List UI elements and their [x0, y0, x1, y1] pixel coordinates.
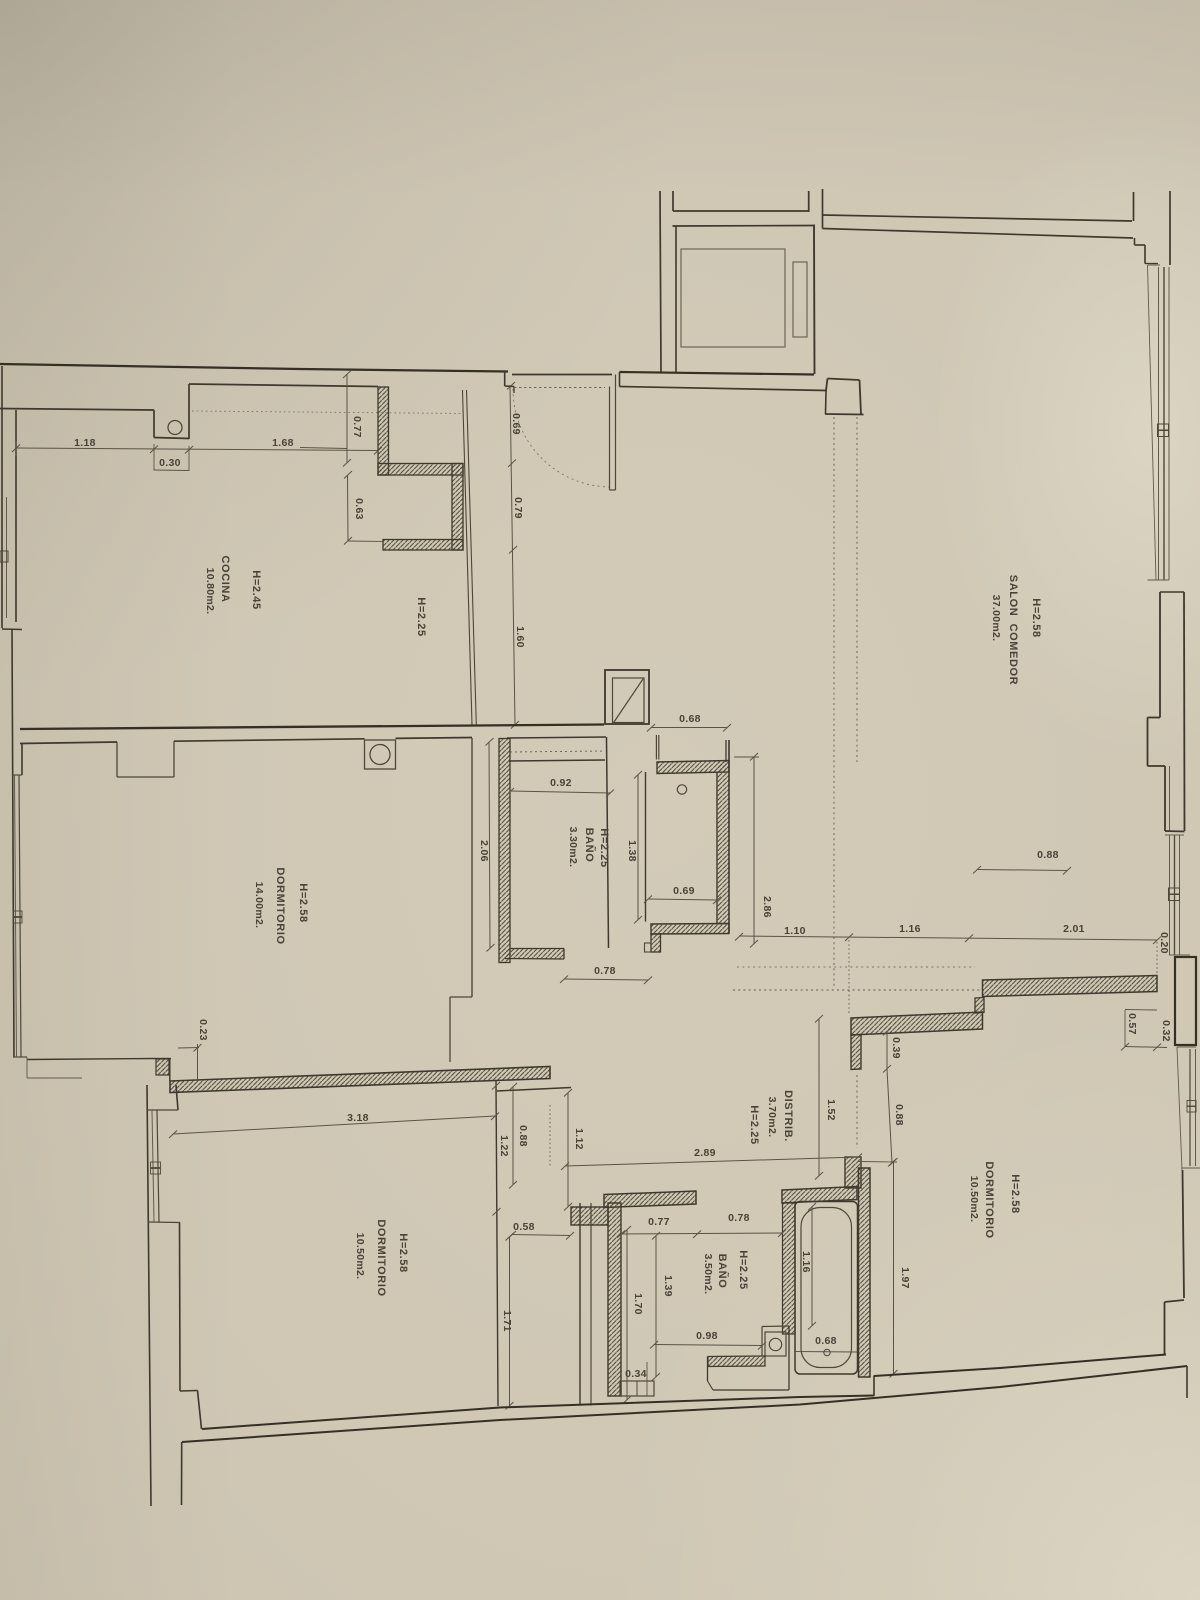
svg-text:0.63: 0.63	[353, 498, 365, 520]
svg-text:BAÑO: BAÑO	[583, 828, 596, 863]
svg-text:0.32: 0.32	[1160, 1020, 1172, 1042]
svg-text:0.34: 0.34	[625, 1368, 647, 1380]
svg-text:0.57: 0.57	[1126, 1013, 1138, 1035]
svg-text:DORMITORIO: DORMITORIO	[274, 867, 286, 944]
svg-text:1.22: 1.22	[498, 1135, 510, 1157]
svg-text:BAÑO: BAÑO	[716, 1254, 729, 1289]
svg-text:2.01: 2.01	[1063, 923, 1085, 935]
svg-text:0.77: 0.77	[648, 1216, 670, 1228]
svg-text:10.50m2.: 10.50m2.	[968, 1176, 980, 1223]
svg-text:1.68: 1.68	[272, 437, 294, 449]
svg-text:0.98: 0.98	[696, 1330, 718, 1342]
svg-text:1.71: 1.71	[501, 1310, 513, 1332]
svg-text:3.18: 3.18	[347, 1112, 369, 1124]
svg-text:0.68: 0.68	[815, 1335, 837, 1347]
svg-text:0.39: 0.39	[890, 1037, 902, 1059]
svg-text:0.30: 0.30	[159, 457, 181, 469]
svg-text:H=2.45: H=2.45	[250, 570, 262, 609]
svg-text:0.92: 0.92	[550, 777, 572, 789]
svg-text:0.88: 0.88	[1037, 849, 1059, 861]
svg-text:1.16: 1.16	[800, 1251, 812, 1273]
svg-text:H=2.58: H=2.58	[1009, 1174, 1021, 1213]
svg-text:0.23: 0.23	[197, 1019, 209, 1041]
svg-text:H=2.25: H=2.25	[748, 1105, 760, 1144]
svg-text:0.88: 0.88	[893, 1104, 905, 1126]
svg-text:1.52: 1.52	[825, 1099, 837, 1121]
svg-text:0.68: 0.68	[679, 713, 701, 725]
svg-text:COCINA: COCINA	[219, 556, 231, 603]
svg-text:0.79: 0.79	[512, 497, 524, 519]
svg-text:2.89: 2.89	[694, 1147, 716, 1159]
svg-text:0.20: 0.20	[1158, 932, 1170, 954]
svg-text:DISTRIB.: DISTRIB.	[782, 1090, 794, 1142]
svg-text:0.58: 0.58	[513, 1221, 535, 1233]
svg-text:3.30m2.: 3.30m2.	[567, 827, 579, 868]
svg-text:37.00m2.: 37.00m2.	[990, 595, 1002, 642]
svg-text:3.50m2.: 3.50m2.	[702, 1254, 714, 1295]
svg-text:1.16: 1.16	[899, 923, 921, 935]
svg-text:H=2.58: H=2.58	[297, 883, 309, 922]
svg-text:H=2.58: H=2.58	[397, 1233, 409, 1272]
svg-text:DORMITORIO: DORMITORIO	[983, 1161, 995, 1238]
svg-text:H=2.25: H=2.25	[415, 597, 427, 636]
svg-text:1.18: 1.18	[74, 437, 96, 449]
svg-text:1.97: 1.97	[899, 1267, 911, 1289]
svg-text:0.69: 0.69	[673, 885, 695, 897]
svg-text:0.78: 0.78	[594, 965, 616, 977]
svg-text:2.06: 2.06	[478, 840, 490, 862]
svg-text:1.70: 1.70	[632, 1293, 644, 1315]
svg-text:H=2.58: H=2.58	[1030, 598, 1042, 637]
svg-text:0.69: 0.69	[510, 413, 522, 435]
svg-text:H=2.25: H=2.25	[737, 1250, 749, 1289]
svg-text:0.88: 0.88	[517, 1125, 529, 1147]
svg-text:2.86: 2.86	[761, 896, 773, 918]
svg-text:1.10: 1.10	[784, 925, 806, 937]
svg-text:10.80m2.: 10.80m2.	[204, 568, 216, 615]
svg-text:SALON COMEDOR: SALON COMEDOR	[1007, 575, 1019, 685]
svg-text:10.50m2.: 10.50m2.	[354, 1233, 366, 1280]
svg-text:3.70m2.: 3.70m2.	[766, 1097, 778, 1138]
svg-text:DORMITORIO: DORMITORIO	[375, 1219, 387, 1296]
svg-text:14.00m2.: 14.00m2.	[253, 882, 265, 929]
svg-text:0.77: 0.77	[351, 416, 363, 438]
svg-text:1.12: 1.12	[573, 1128, 585, 1150]
svg-text:1.60: 1.60	[514, 626, 526, 648]
svg-text:0.78: 0.78	[728, 1212, 750, 1224]
svg-text:H=2.25: H=2.25	[598, 828, 610, 867]
svg-text:1.39: 1.39	[662, 1275, 674, 1297]
svg-text:1.38: 1.38	[626, 840, 638, 862]
